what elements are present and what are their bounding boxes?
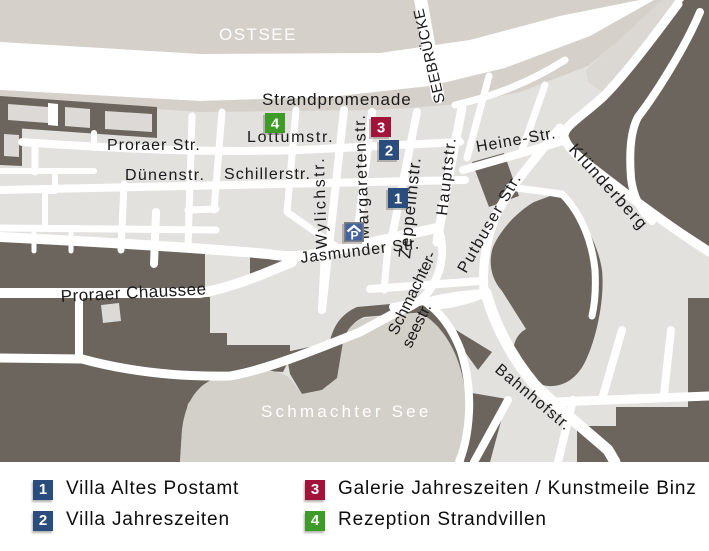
svg-text:Dünenstr.: Dünenstr. xyxy=(125,167,205,184)
svg-text:Schmachter See: Schmachter See xyxy=(261,402,431,421)
svg-text:3: 3 xyxy=(377,120,385,137)
svg-text:Wylichstr.: Wylichstr. xyxy=(311,156,331,250)
svg-text:1: 1 xyxy=(394,191,402,208)
svg-text:2: 2 xyxy=(385,143,393,160)
svg-text:OSTSEE: OSTSEE xyxy=(219,25,297,44)
svg-text:P: P xyxy=(350,229,358,243)
svg-text:Strandpromenade: Strandpromenade xyxy=(262,90,412,109)
svg-text:Proraer Str.: Proraer Str. xyxy=(107,137,201,154)
svg-text:4: 4 xyxy=(271,116,280,133)
svg-text:Schillerstr.: Schillerstr. xyxy=(224,166,311,183)
svg-text:Lottumstr.: Lottumstr. xyxy=(247,129,334,146)
